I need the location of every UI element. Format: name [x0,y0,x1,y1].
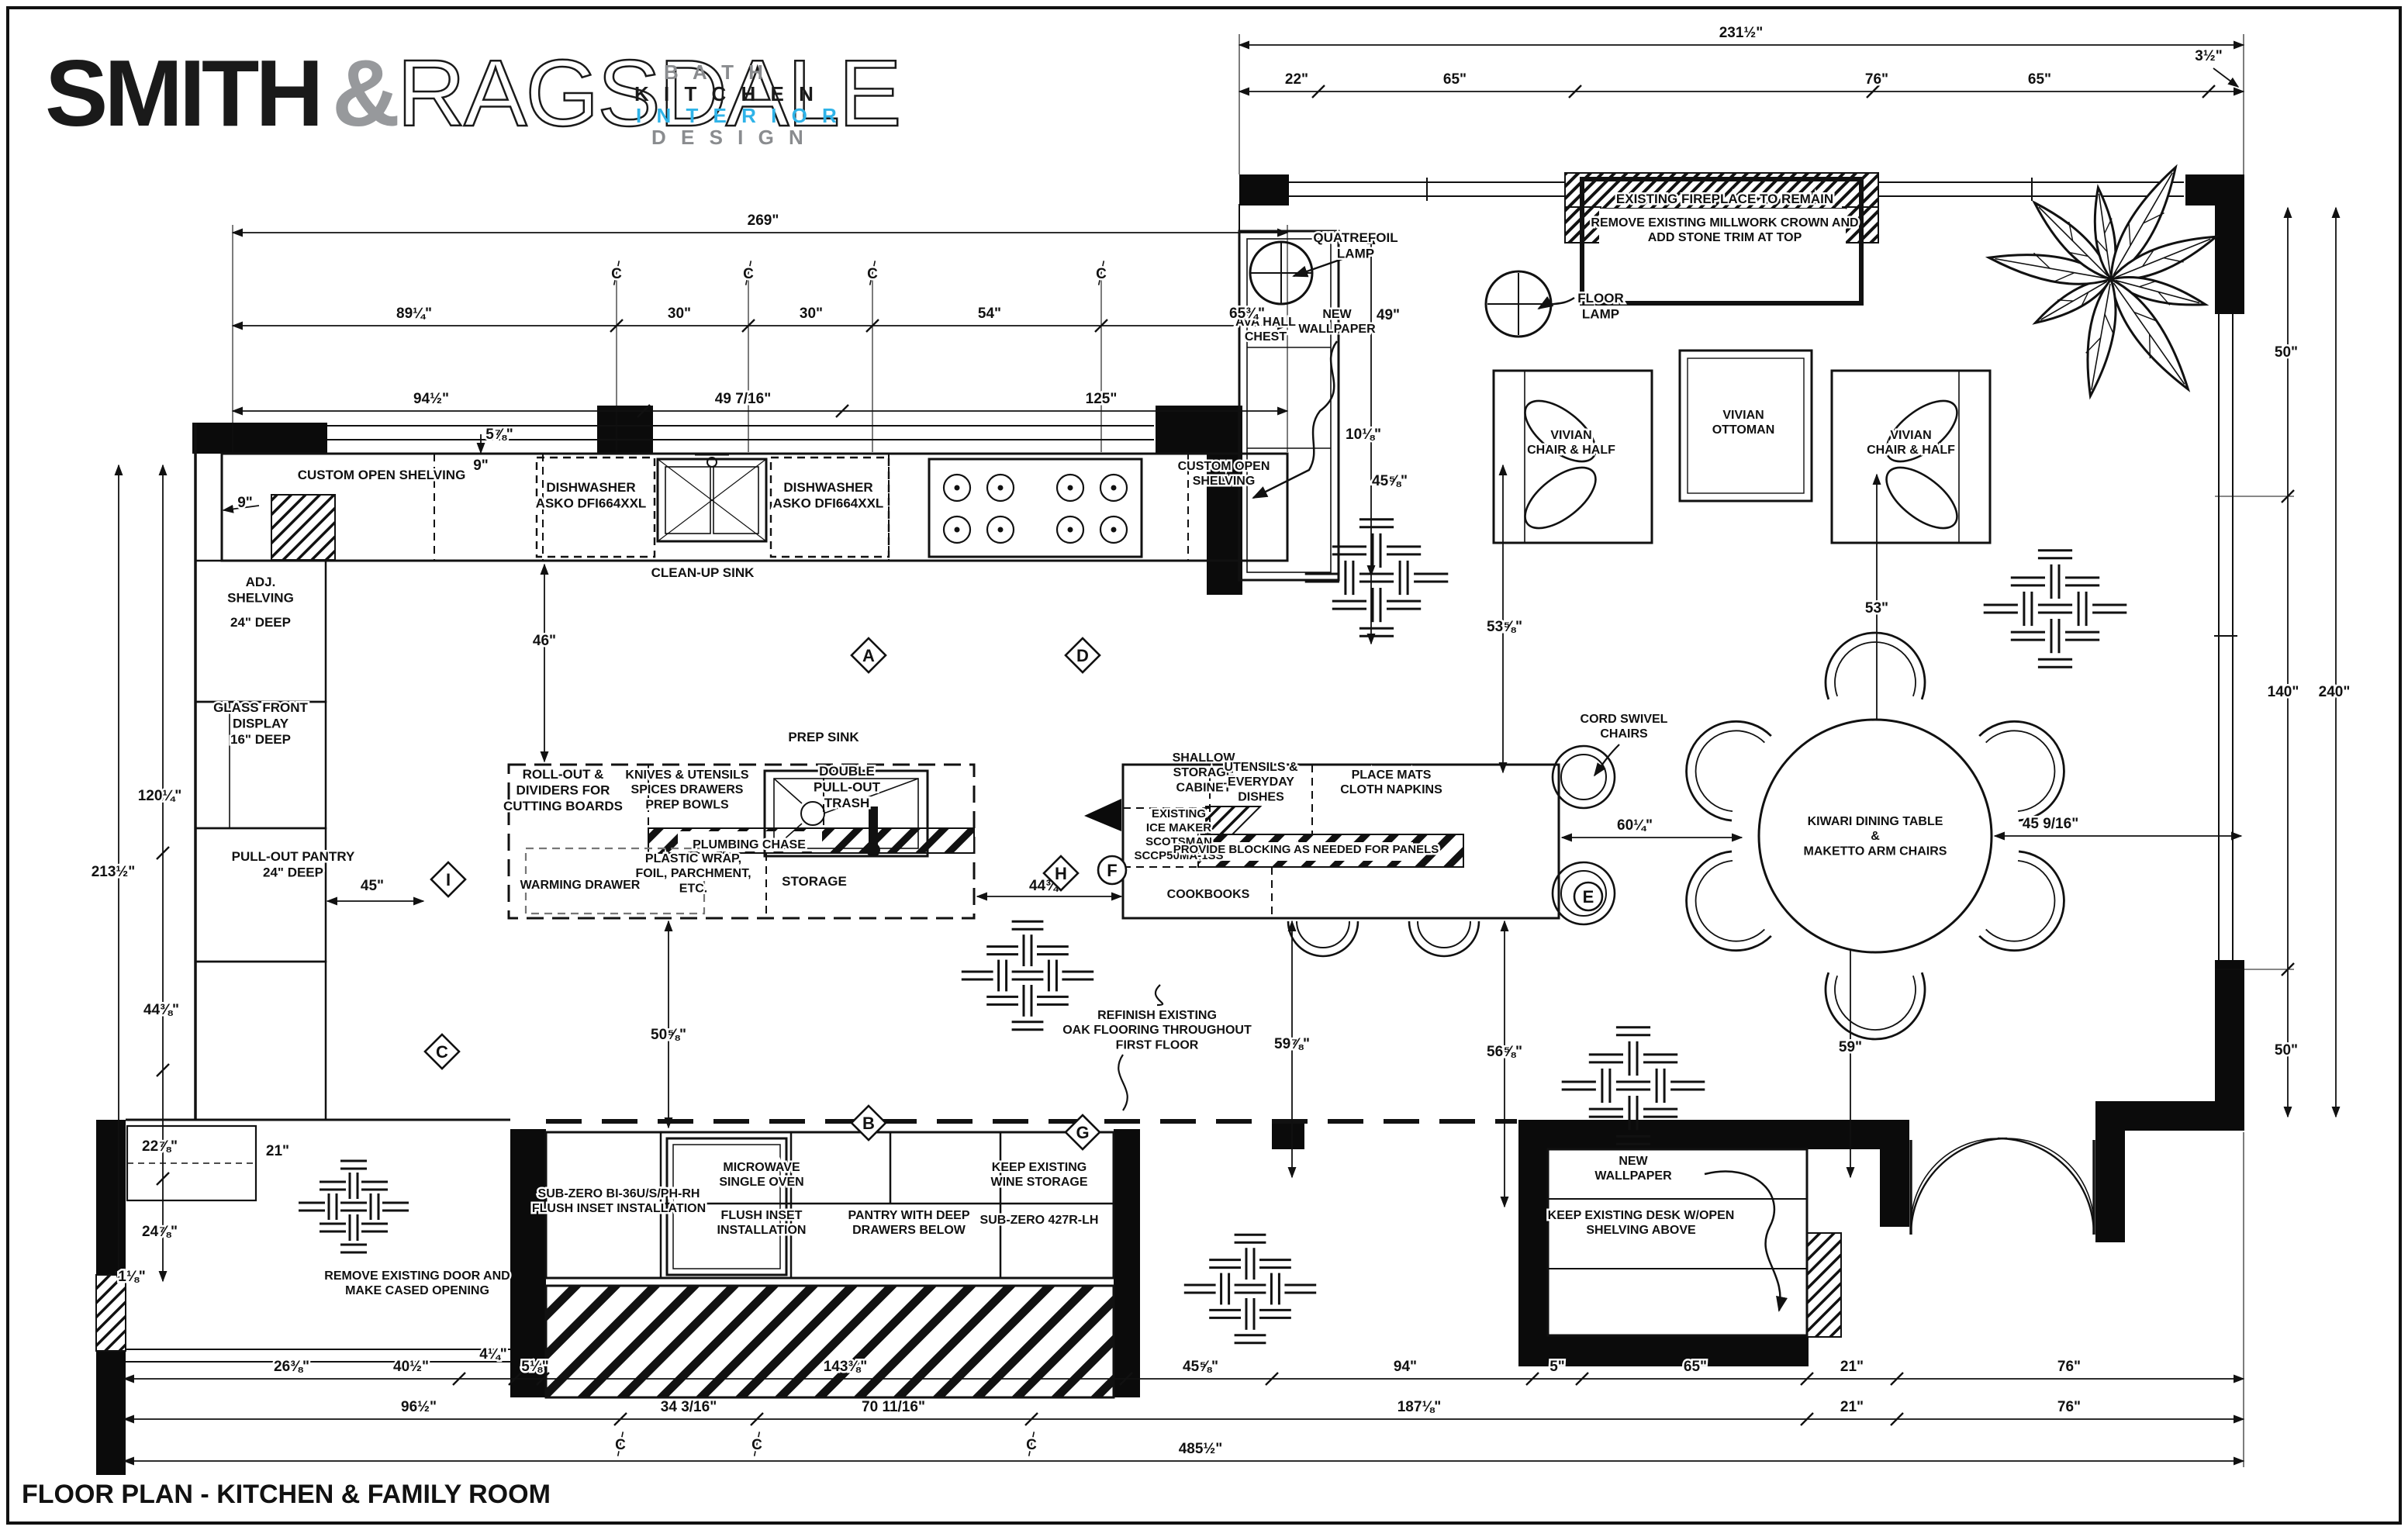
dimension-text: 485½" [1179,1441,1223,1457]
label-provide-blocking: PROVIDE BLOCKING AS NEEDED FOR PANELS [1173,843,1439,856]
dimension-text: 59⅞" [1274,1036,1310,1052]
svg-text:G: G [1076,1123,1089,1142]
marker-F: F [1098,856,1126,884]
logo-stack-line: B A T H [664,60,768,84]
svg-text:C: C [743,266,754,282]
dimension-text: 45⅝" [1183,1359,1218,1375]
dimension-text: 5" [1549,1359,1565,1375]
dimension-text: 45⅝" [1372,473,1408,489]
svg-text:H: H [1055,864,1067,883]
dimension-text: 187⅛" [1397,1399,1442,1415]
dimension-text: 10⅛" [1346,427,1381,443]
label-custom-open-shelving-left: CUSTOM OPEN SHELVING [298,468,466,482]
logo-stack-line: I N T E R I O R [636,104,841,127]
label-floor-lamp: FLOORLAMP [1577,291,1624,321]
dimension-text: 140" [2268,684,2299,700]
sheet-title: FLOOR PLAN - KITCHEN & FAMILY ROOM [22,1480,551,1509]
dimension-text: 65¾" [1229,306,1265,322]
label-cookbooks: COOKBOOKS [1167,888,1250,901]
dimension-text: 21" [1840,1399,1864,1415]
dimension-text: 40½" [393,1359,429,1375]
dimension-text: 65" [1443,71,1467,88]
marker-E: E [1574,882,1602,910]
dimension-text: 76" [1865,71,1888,88]
svg-text:E: E [1583,887,1594,907]
label-existing-fireplace: EXISTING FIREPLACE TO REMAIN [1616,192,1833,206]
dimension-text: 65" [2028,71,2051,88]
svg-text:C: C [751,1437,762,1453]
label-adj-shelving-depth: 24" DEEP [230,615,291,630]
dimension-text: 46" [533,633,556,649]
label-prep-sink: PREP SINK [788,730,859,744]
dimension-text: 22" [1285,71,1308,88]
svg-text:A: A [862,646,875,665]
svg-text:C: C [867,266,878,282]
svg-text:C: C [436,1042,448,1062]
dimension-text: 30" [800,306,823,322]
svg-text:C: C [1026,1437,1037,1453]
dimension-text: 269" [748,212,779,229]
dimension-text: 213½" [92,864,136,880]
dimension-text: 76" [2057,1399,2081,1415]
dimension-text: 70 11/16" [862,1399,925,1415]
dimension-text: 3½" [2195,48,2222,64]
bottom-wall-hatch [546,1286,1114,1397]
svg-text:C: C [611,266,622,282]
dimension-text: 120¼" [138,788,182,804]
dimension-text: 240" [2319,684,2351,700]
dimension-text: 5⅞" [485,427,513,443]
dimension-text: 44⅜" [143,1002,179,1018]
dimension-text: 54" [978,306,1001,322]
label-warming-drawer: WARMING DRAWER [520,879,641,892]
floor-plan-canvas: SMITH & RAGSDALE B A T HK I T C H E NI N… [0,0,2408,1537]
dimension-text: 94" [1394,1359,1417,1375]
dimension-text: 22⅞" [142,1138,178,1155]
corner-cabinet-hatch [271,495,335,560]
dimension-text: 143⅜" [824,1359,868,1375]
logo: SMITH & RAGSDALE B A T HK I T C H E NI N… [45,40,900,149]
dimension-text: 65" [1684,1359,1707,1375]
dimension-text: 53⅝" [1487,619,1522,635]
dimension-text: 24⅞" [142,1224,178,1240]
label-storage: STORAGE [782,874,847,889]
dimension-text: 231½" [1719,25,1764,41]
logo-stack-line: D E S I G N [651,126,808,149]
logo-smith: SMITH [45,40,320,146]
svg-text:F: F [1107,861,1117,880]
label-clean-up-sink: CLEAN-UP SINK [651,565,755,580]
label-dishwasher-right: DISHWASHERASKO DFI664XXL [773,480,884,510]
drawing-sheet: SMITH & RAGSDALE B A T HK I T C H E NI N… [0,0,2408,1537]
dimension-text: 89¼" [396,306,432,322]
dimension-text: 49" [1377,307,1400,323]
dimension-text: 21" [1840,1359,1864,1375]
dimension-text: 45 9/16" [2023,816,2078,832]
dimension-text: 50⅝" [651,1027,686,1043]
dimension-text: 50" [2275,344,2298,361]
dimension-text: 34 3/16" [661,1399,717,1415]
dimension-text: 30" [668,306,691,322]
svg-text:B: B [862,1114,875,1133]
dimension-text: 96½" [401,1399,437,1415]
dimension-text: 21" [266,1143,289,1159]
dimension-text: 76" [2057,1359,2081,1375]
svg-text:D: D [1076,646,1089,665]
svg-text:C: C [615,1437,626,1453]
dimension-text: 50" [2275,1042,2298,1059]
dimension-text: 9" [237,495,253,511]
dimension-text: 94½" [413,391,449,407]
dimension-text: 49 7/16" [715,391,771,407]
logo-stack-line: K I T C H E N [634,82,818,105]
dimension-text: 26⅜" [274,1359,309,1375]
dimension-text: 60¼" [1617,817,1653,834]
dimension-text: 5⅛" [521,1359,548,1375]
label-dishwasher-left: DISHWASHERASKO DFI664XXL [536,480,647,510]
svg-text:C: C [1096,266,1107,282]
svg-text:I: I [446,870,451,889]
dimension-text: 1⅛" [118,1269,145,1285]
logo-ampersand: & [332,40,400,146]
dimension-text: 59" [1839,1039,1862,1055]
dimension-text: 9" [473,458,489,474]
dimension-text: 125" [1086,391,1118,407]
dimension-text: 45" [361,878,384,894]
label-sub-zero-2: SUB-ZERO 427R-LH [980,1214,1099,1227]
dimension-text: 56⅝" [1487,1044,1522,1060]
dimension-text: 53" [1865,600,1888,617]
label-plumbing-chase: PLUMBING CHASE [693,838,806,851]
dimension-text: 4¼" [479,1346,506,1363]
